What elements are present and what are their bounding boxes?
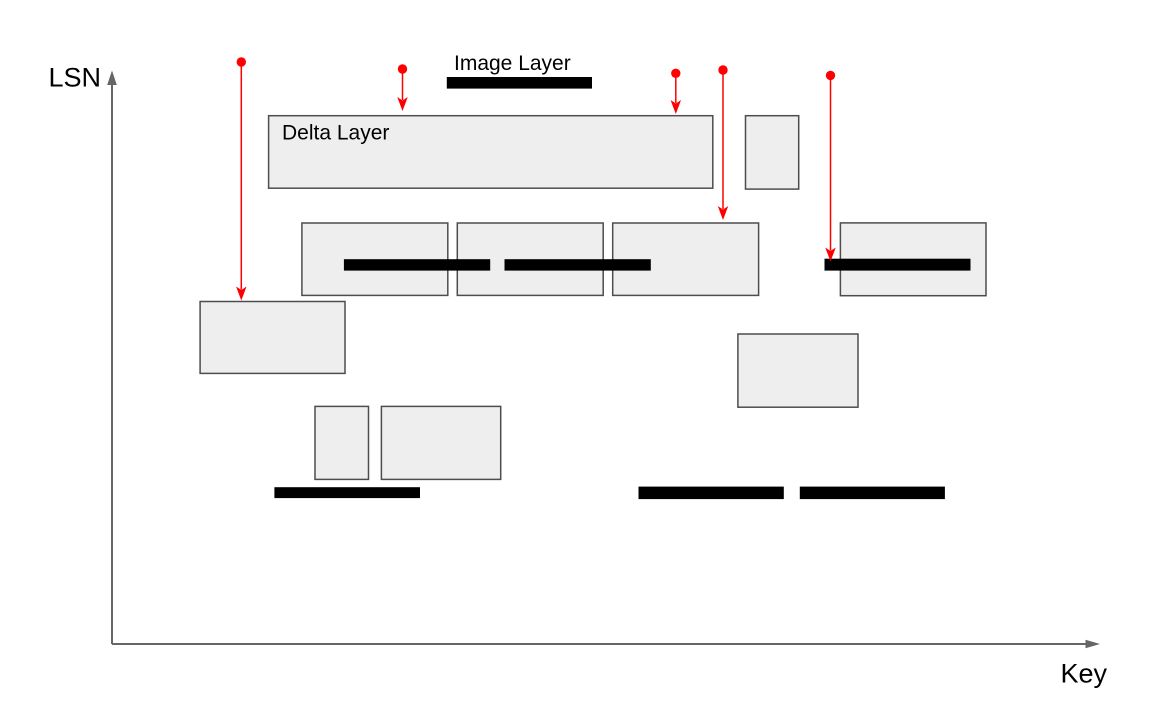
svg-text:LSN: LSN bbox=[49, 63, 102, 93]
svg-text:Image Layer: Image Layer bbox=[454, 52, 571, 75]
svg-text:Key: Key bbox=[1061, 659, 1108, 689]
svg-text:Delta Layer: Delta Layer bbox=[282, 122, 389, 145]
